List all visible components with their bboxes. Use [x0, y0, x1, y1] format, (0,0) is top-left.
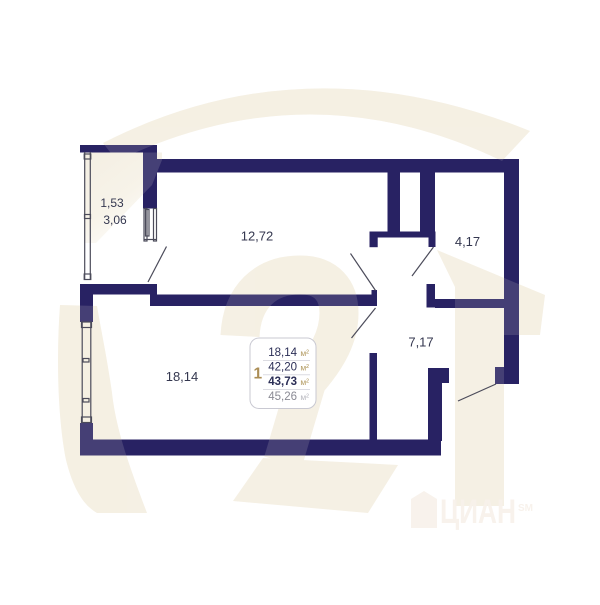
svg-text:42,20: 42,20 — [268, 362, 297, 374]
svg-text:12,72: 12,72 — [241, 229, 274, 244]
svg-text:1,53: 1,53 — [100, 196, 124, 210]
svg-text:45,26: 45,26 — [268, 391, 297, 403]
svg-text:SM: SM — [518, 503, 533, 514]
svg-text:м²: м² — [300, 348, 309, 358]
svg-text:1: 1 — [254, 366, 263, 383]
svg-text:м²: м² — [300, 377, 309, 387]
svg-text:4,17: 4,17 — [455, 234, 480, 249]
svg-text:7,17: 7,17 — [408, 335, 433, 350]
svg-text:43,73: 43,73 — [268, 376, 297, 388]
svg-text:3,06: 3,06 — [103, 213, 127, 227]
svg-text:18,14: 18,14 — [166, 369, 199, 384]
svg-text:м²: м² — [300, 392, 309, 402]
svg-text:м²: м² — [300, 363, 309, 373]
svg-text:18,14: 18,14 — [268, 347, 297, 359]
